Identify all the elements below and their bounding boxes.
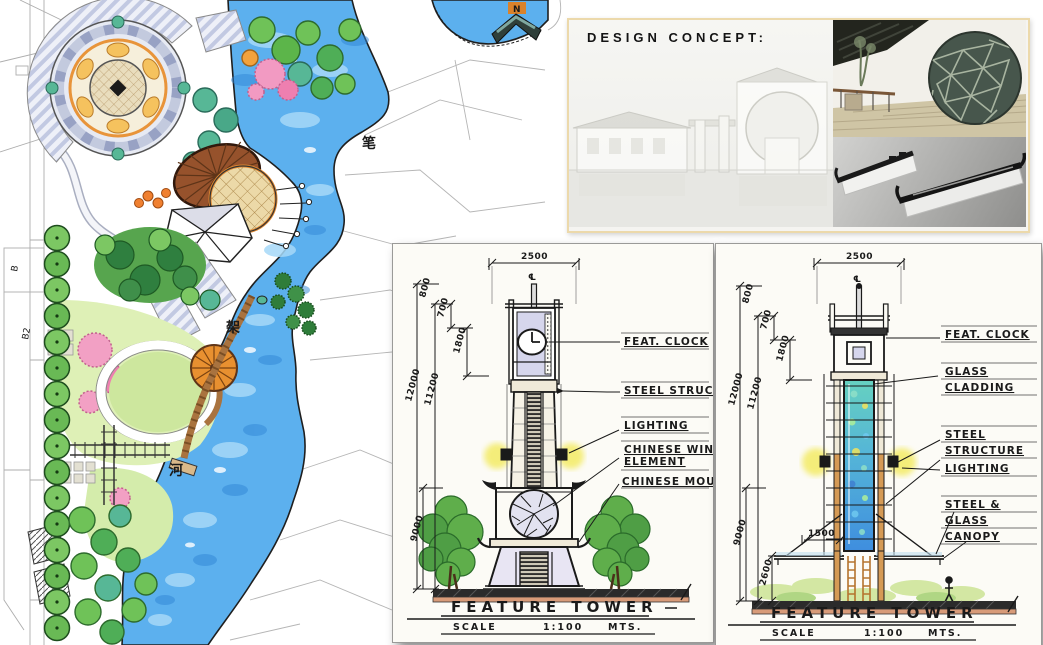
dim-width: 2500 xyxy=(521,252,548,262)
north-label: N xyxy=(513,5,521,15)
photo-roof-detail xyxy=(833,137,1026,227)
dim-width: 2500 xyxy=(846,252,873,262)
tower-structure xyxy=(478,266,590,589)
annotation-canopy-3: CANOPY xyxy=(945,531,1000,543)
design-concept-panel: DESIGN CONCEPT: xyxy=(567,18,1030,233)
buildings-sketch xyxy=(569,20,833,227)
tower-elevation-left-panel: 2500 ℄ 800 700 1800 12000 11200 9000 FEA… xyxy=(392,243,714,643)
annotation-lighting: LIGHTING xyxy=(624,420,688,432)
river-char-1: 笔 xyxy=(362,135,376,152)
tower-elevation-right: 2500 ℄ 800 700 1800 12000 11200 9000 150… xyxy=(716,244,1041,645)
drawing-title: FEATURE TOWER xyxy=(451,598,658,616)
river-char-2: 架 xyxy=(225,319,240,336)
concept-title: DESIGN CONCEPT: xyxy=(587,30,767,45)
bay-water xyxy=(432,0,548,44)
annotation-canopy-2: GLASS xyxy=(945,515,988,527)
annotation-moulding: CHINESE MOULDING xyxy=(622,476,713,488)
roof-sketch xyxy=(833,137,1026,227)
annotation-steel-1: STEEL xyxy=(945,429,986,441)
annotation-window-1: CHINESE WINDOW xyxy=(624,444,713,456)
tree-left xyxy=(418,496,483,589)
annotation-glass-1: GLASS xyxy=(945,366,988,378)
plot-label-b: B xyxy=(10,265,21,273)
dim-centerline: ℄ xyxy=(528,273,537,283)
dim-total: 12000 xyxy=(727,372,745,407)
title-block: FEATURE TOWER SCALE 1:100 MTS. xyxy=(728,604,1016,640)
units-word: MTS. xyxy=(928,628,962,639)
annotation-feat-clock: FEAT. CLOCK xyxy=(945,329,1030,341)
dim-clock: 1800 xyxy=(775,334,792,363)
annotation-feat-clock: FEAT. CLOCK xyxy=(624,336,709,348)
tower-structure xyxy=(774,266,944,601)
plot-label-b2: B2 xyxy=(21,327,33,340)
annotation-lighting: LIGHTING xyxy=(945,463,1009,475)
photo-buildings xyxy=(569,20,833,227)
units-word: MTS. xyxy=(608,622,642,633)
scale-word: SCALE xyxy=(453,622,497,633)
annotation-glass-2: CLADDING xyxy=(945,382,1014,394)
photo-lattice-window xyxy=(833,20,1026,137)
title-block: FEATURE TOWER SCALE 1:100 MTS. xyxy=(407,598,695,634)
dim-shaft: 11200 xyxy=(746,376,764,411)
presentation-board: B B2 xyxy=(0,0,1043,645)
annotation-steel-2: STRUCTURE xyxy=(945,445,1024,457)
river-char-3: 河 xyxy=(169,462,183,479)
tree-right xyxy=(585,496,650,589)
dim-shaft: 11200 xyxy=(423,372,441,407)
scale-value: 1:100 xyxy=(864,628,904,639)
drawing-title: FEATURE TOWER xyxy=(771,604,978,622)
annotation-canopy-1: STEEL & xyxy=(945,499,1001,511)
annotation-window-2: ELEMENT xyxy=(624,456,686,468)
tower-elevation-left: 2500 ℄ 800 700 1800 12000 11200 9000 FEA… xyxy=(393,244,713,642)
tower-elevation-right-panel: 2500 ℄ 800 700 1800 12000 11200 9000 150… xyxy=(715,243,1042,645)
river-rock xyxy=(257,296,267,304)
dim-canopy: 1500 xyxy=(808,529,835,539)
lattice-sketch xyxy=(833,20,1026,137)
annotation-steel-struct: STEEL STRUCT. xyxy=(624,385,713,397)
dim-clock: 1800 xyxy=(452,326,469,355)
scale-word: SCALE xyxy=(772,628,816,639)
scale-value: 1:100 xyxy=(543,622,583,633)
dim-centerline: ℄ xyxy=(853,275,862,285)
dim-total: 12000 xyxy=(404,368,422,403)
